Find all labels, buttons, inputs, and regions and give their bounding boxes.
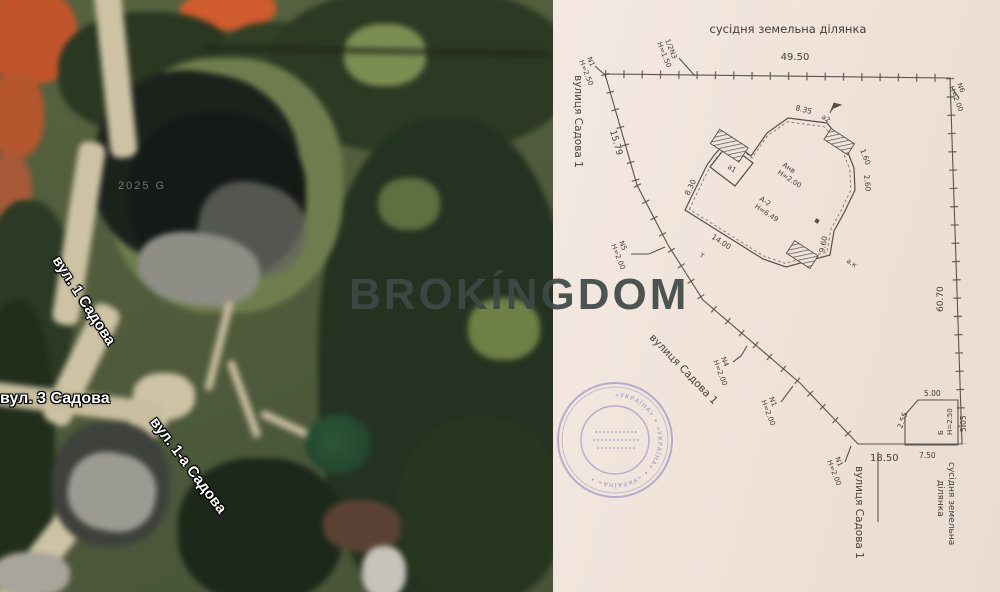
porch-steps-south	[786, 241, 818, 269]
light-canopy-2	[468, 298, 540, 360]
porch-steps-northwest	[710, 129, 748, 162]
dim-60-70: 60.70	[936, 286, 946, 312]
dim-18-50: 18.50	[870, 453, 899, 464]
neighbor-parcel-top-label: сусідня земельна ділянка	[710, 22, 867, 36]
pond	[305, 414, 371, 474]
svg-text:Б: Б	[937, 430, 945, 435]
dim-5-05: 5.05	[959, 415, 968, 432]
a1-label: а1	[726, 163, 738, 174]
svg-text:сусідня земельна: сусідня земельна	[946, 462, 956, 545]
dim-49-50: 49.50	[781, 52, 810, 63]
cadastral-plan: А-2 Н=6.49 Анв Н=2.00 а1 а2 а.к т 8.35 8…	[553, 0, 1000, 592]
annex-id-label: Анв Н=2.00	[776, 161, 808, 190]
dim-2-55: 2.55	[895, 411, 909, 430]
neighbor-parcel-bottom-label: сусідня земельна ділянка	[935, 462, 956, 545]
white-shed	[362, 546, 406, 592]
dim-5-00: 5.00	[924, 389, 941, 398]
column-mark	[814, 218, 820, 224]
street-label-diagonal: вулиця Садова 1	[647, 332, 720, 407]
satellite-photo: вул. 1 Садова вул. 3 Садова вул. 1-а Сад…	[0, 0, 553, 592]
t-mark-label: т	[698, 250, 707, 260]
light-canopy-3	[378, 178, 440, 230]
official-stamp: «УКРАЇНА» • «УКРАЇНА» • «УКРАЇНА» •	[558, 383, 672, 497]
marker-n4: N4 Н=2.00	[711, 356, 736, 387]
dim-8-35: 8.35	[795, 103, 814, 116]
street-label-left: вулиця Садова 1	[572, 75, 584, 168]
ak-label: а.к	[845, 257, 858, 270]
plan-drawing: А-2 Н=6.49 Анв Н=2.00 а1 а2 а.к т 8.35 8…	[553, 0, 1000, 592]
marker-n5: N5 Н=2.00	[609, 240, 634, 271]
marker-n1-diagonal: N1 Н=2.00	[759, 396, 784, 427]
path-bottomleft	[0, 552, 70, 592]
dim-1-60: 1.60	[858, 147, 872, 166]
porch-steps-northeast	[824, 129, 855, 155]
dim-2-60: 2.60	[862, 174, 873, 192]
listing-image: вул. 1 Садова вул. 3 Садова вул. 1-а Сад…	[0, 0, 1000, 592]
flag-mark	[830, 103, 841, 113]
building-id-label: А-2 Н=6.49	[753, 195, 785, 224]
dim-7-50: 7.50	[919, 451, 936, 460]
light-canopy-1	[344, 24, 426, 86]
plot-boundary	[605, 74, 962, 444]
svg-text:Н=2.50: Н=2.50	[946, 408, 954, 435]
marker-1-2n3: 1/2N3 Н=1.50	[655, 38, 680, 69]
marker-n1-bottom: N1 Н=2.00	[825, 456, 850, 487]
trees-bottom-right	[398, 418, 553, 592]
street-label-bottom: вулиця Садова 1	[853, 466, 865, 559]
orange-roof-left	[0, 72, 44, 158]
svg-text:ділянка: ділянка	[935, 480, 945, 517]
street-label-3-sadova: вул. 3 Садова	[0, 390, 110, 408]
imagery-credit: 2025 G	[118, 180, 166, 192]
dim-15-79: 15.79	[607, 129, 624, 157]
main-building-footprint	[685, 103, 855, 268]
outbuilding-id-label: Б Н=2.50	[937, 408, 954, 435]
